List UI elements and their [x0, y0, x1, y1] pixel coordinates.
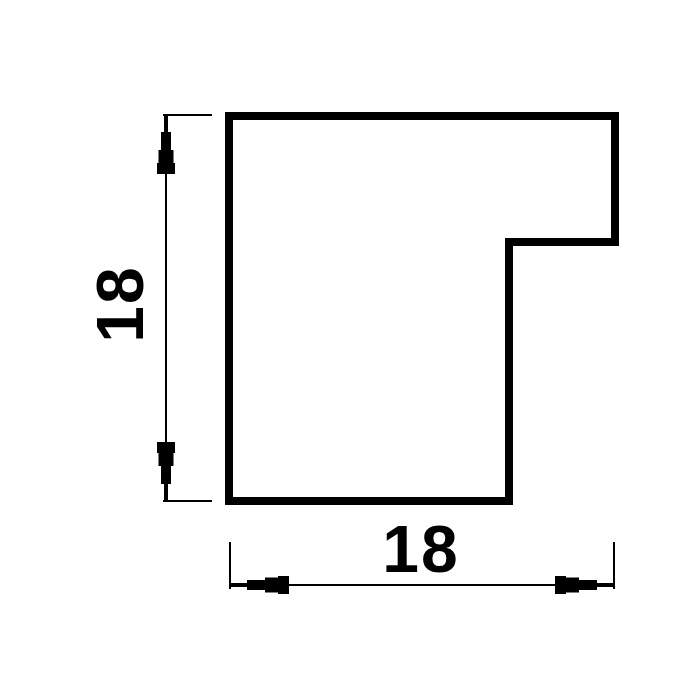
arrow-up-icon [157, 116, 175, 174]
horizontal-dimension: 18 [230, 512, 614, 594]
technical-drawing: 18 18 [0, 0, 700, 700]
horizontal-dim-label: 18 [382, 512, 459, 586]
vertical-dimension: 18 [83, 115, 212, 501]
profile-outline [229, 116, 615, 501]
arrow-down-icon [157, 442, 175, 500]
arrow-left-icon [231, 576, 289, 594]
drawing-canvas: 18 18 [0, 0, 700, 700]
vertical-dim-label: 18 [83, 265, 157, 342]
arrow-right-icon [555, 576, 613, 594]
